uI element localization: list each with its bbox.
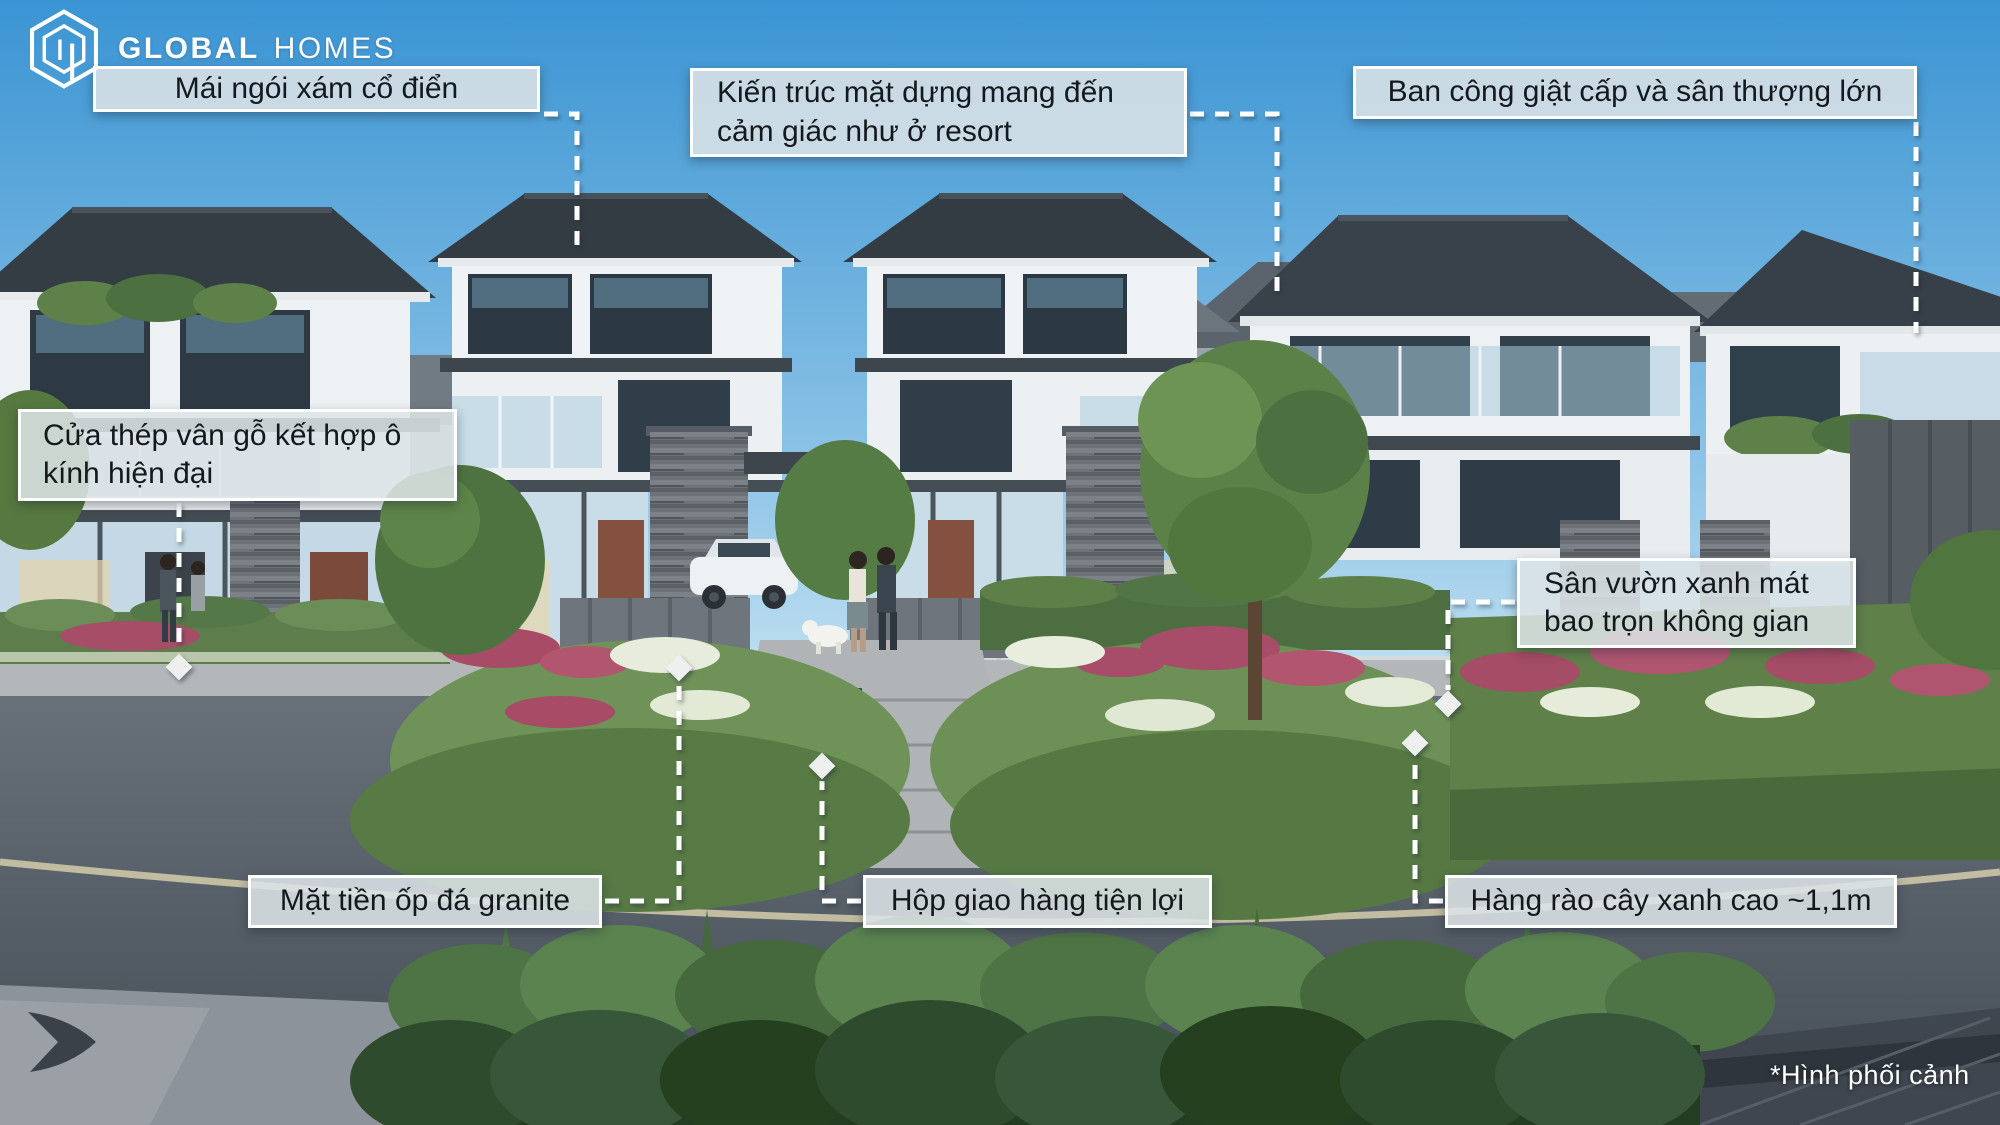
callout-steel-door-label: Cửa thép vân gỗ kết hợp ô kính hiện đại: [43, 417, 401, 493]
callout-balcony-terrace: Ban công giật cấp và sân thượng lớn: [1353, 66, 1917, 119]
marketing-render-page: Mái ngói xám cổ điển Kiến trúc mặt dựng …: [0, 0, 2000, 1125]
brand-wordmark: GLOBAL HOMES: [118, 32, 396, 66]
callout-green-fence: Hàng rào cây xanh cao ~1,1m: [1445, 875, 1897, 928]
brand-word-global: GLOBAL: [118, 32, 260, 66]
callout-delivery-box: Hộp giao hàng tiện lợi: [863, 875, 1212, 928]
hexagon-building-logo-icon: [30, 8, 98, 90]
callout-green-fence-label: Hàng rào cây xanh cao ~1,1m: [1470, 882, 1871, 920]
callout-granite-facade-label: Mặt tiền ốp đá granite: [280, 882, 570, 920]
perspective-footnote: *Hình phối cảnh: [1770, 1060, 1970, 1091]
brand-word-homes: HOMES: [274, 32, 397, 66]
callout-steel-door: Cửa thép vân gỗ kết hợp ô kính hiện đại: [18, 409, 457, 501]
callout-facade-resort-label: Kiến trúc mặt dựng mang đến cảm giác như…: [717, 74, 1114, 150]
callout-delivery-box-label: Hộp giao hàng tiện lợi: [891, 882, 1184, 920]
callout-granite-facade: Mặt tiền ốp đá granite: [248, 875, 602, 928]
callout-green-garden: Sân vườn xanh mát bao trọn không gian: [1517, 558, 1856, 648]
callout-green-garden-label: Sân vườn xanh mát bao trọn không gian: [1544, 565, 1809, 641]
callout-facade-resort: Kiến trúc mặt dựng mang đến cảm giác như…: [690, 68, 1187, 157]
callout-balcony-terrace-label: Ban công giật cấp và sân thượng lớn: [1388, 73, 1883, 111]
brand-logo: GLOBAL HOMES: [30, 8, 396, 90]
